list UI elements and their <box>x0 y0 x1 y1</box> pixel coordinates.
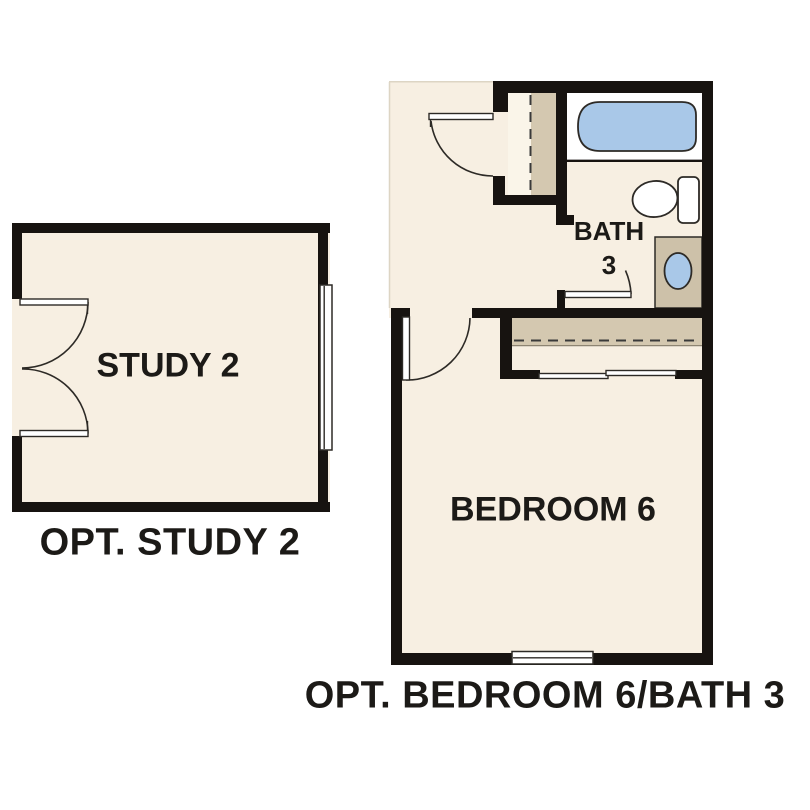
bath-room-label-line1: BATH <box>574 214 644 248</box>
upper-closet-shelf-area <box>531 93 556 195</box>
wall-segment <box>557 290 565 318</box>
study-caption: OPT. STUDY 2 <box>40 522 301 565</box>
toilet-tank-icon <box>678 177 699 223</box>
door-leaf <box>20 431 88 437</box>
study-window-icon <box>320 285 332 450</box>
wall-segment <box>566 215 574 225</box>
wall-segment <box>500 370 540 379</box>
wall-segment <box>12 436 22 512</box>
wall-segment <box>500 318 512 379</box>
window-frame <box>320 285 332 450</box>
study-room-label: STUDY 2 <box>97 347 240 386</box>
wall-segment <box>12 502 330 512</box>
bath-room-label-line2: 3 <box>574 248 644 282</box>
bedroom-room-label: BEDROOM 6 <box>450 491 656 530</box>
bedroom-window-icon <box>512 652 593 665</box>
bypass-panel <box>539 374 608 379</box>
upper-closet-light-area <box>508 93 531 195</box>
bedroom-bath-caption: OPT. BEDROOM 6/BATH 3 <box>305 675 786 718</box>
wall-segment <box>493 93 508 112</box>
wall-segment <box>493 195 567 205</box>
wall-segment <box>472 308 713 318</box>
wall-segment <box>675 370 713 379</box>
door-leaf <box>565 292 631 298</box>
bypass-panel <box>606 371 676 376</box>
wall-segment <box>493 81 713 93</box>
door-leaf <box>403 317 410 380</box>
floor-plan-canvas: STUDY 2 OPT. STUDY 2 BATH 3 BEDROOM 6 OP… <box>0 0 810 810</box>
door-leaf <box>20 299 88 305</box>
bathtub-icon <box>578 102 696 151</box>
wall-segment <box>556 93 567 225</box>
wall-segment <box>391 308 402 665</box>
sink-icon <box>665 253 692 289</box>
wall-segment <box>12 223 22 299</box>
wall-segment <box>12 223 330 233</box>
door-leaf <box>429 114 493 120</box>
bath-room-label: BATH 3 <box>574 214 644 282</box>
